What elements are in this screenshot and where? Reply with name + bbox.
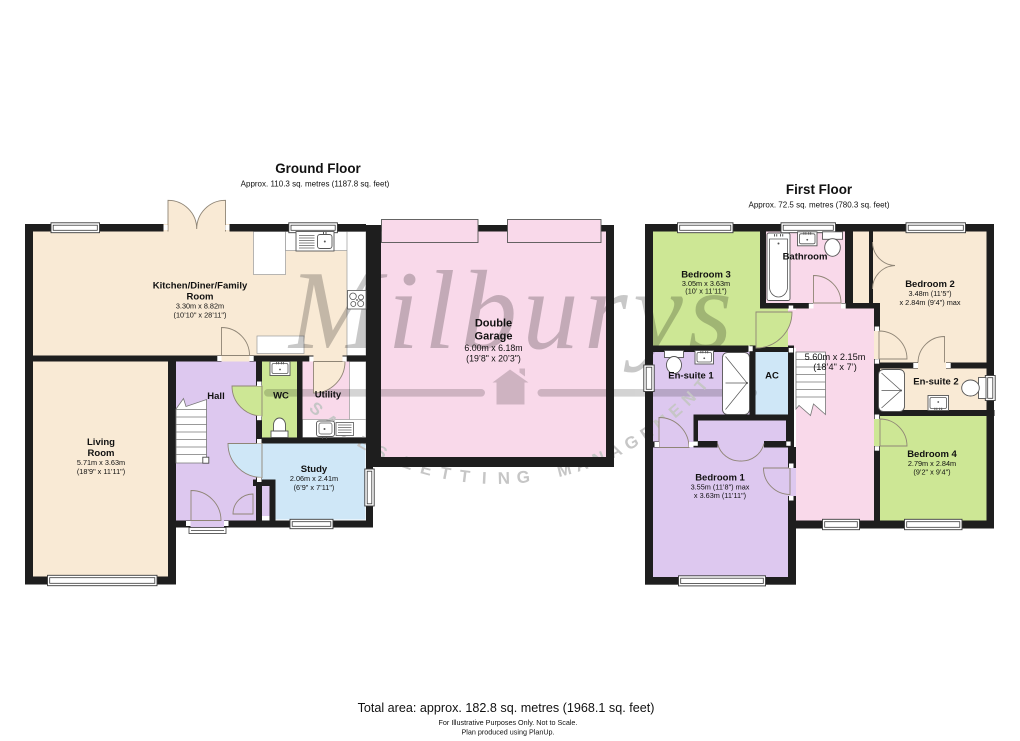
svg-text:x 2.84m (9’4") max: x 2.84m (9’4") max xyxy=(900,298,961,307)
svg-text:(10’ x 11’11"): (10’ x 11’11") xyxy=(685,287,726,296)
svg-text:2.06m x 2.41m: 2.06m x 2.41m xyxy=(290,474,338,483)
svg-text:En-suite 1: En-suite 1 xyxy=(668,371,714,382)
svg-text:(6’9" x 7’11"): (6’9" x 7’11") xyxy=(294,483,335,492)
svg-text:Garage: Garage xyxy=(475,331,513,343)
svg-text:For Illustrative Purposes Only: For Illustrative Purposes Only. Not to S… xyxy=(439,718,578,727)
svg-text:Double: Double xyxy=(475,318,512,330)
svg-text:3.30m x 8.82m: 3.30m x 8.82m xyxy=(176,302,224,311)
svg-text:N: N xyxy=(497,469,510,488)
svg-text:5.71m x 3.63m: 5.71m x 3.63m xyxy=(77,458,125,467)
svg-text:3.48m (11’5"): 3.48m (11’5") xyxy=(908,289,951,298)
svg-text:First Floor: First Floor xyxy=(786,182,853,197)
svg-text:AC: AC xyxy=(765,371,779,382)
svg-text:Approx. 72.5 sq. metres (780.3: Approx. 72.5 sq. metres (780.3 sq. feet) xyxy=(749,201,890,210)
svg-text:(18’4" x 7’): (18’4" x 7’) xyxy=(813,362,857,372)
svg-text:Utility: Utility xyxy=(315,390,342,401)
svg-text:6.00m x 6.18m: 6.00m x 6.18m xyxy=(464,343,522,353)
svg-text:x 3.63m (11’11"): x 3.63m (11’11") xyxy=(694,491,746,500)
svg-text:(9’2" x 9’4"): (9’2" x 9’4") xyxy=(913,468,950,477)
svg-text:(10’10" x 28’11"): (10’10" x 28’11") xyxy=(174,311,227,320)
svg-text:Hall: Hall xyxy=(207,391,224,402)
svg-text:5.60m x 2.15m: 5.60m x 2.15m xyxy=(805,352,866,362)
svg-text:(19’8" x 20’3"): (19’8" x 20’3") xyxy=(466,354,521,364)
svg-text:Bathroom: Bathroom xyxy=(783,252,828,263)
svg-text:Plan produced using PlanUp.: Plan produced using PlanUp. xyxy=(461,728,554,737)
svg-text:I: I xyxy=(481,469,487,488)
svg-text:En-suite 2: En-suite 2 xyxy=(913,377,958,388)
svg-text:Ground Floor: Ground Floor xyxy=(275,161,361,176)
svg-text:G: G xyxy=(516,467,531,487)
svg-text:Living: Living xyxy=(87,437,115,448)
svg-text:Kitchen/Diner/Family: Kitchen/Diner/Family xyxy=(153,281,248,292)
svg-text:Approx. 110.3 sq. metres (1187: Approx. 110.3 sq. metres (1187.8 sq. fee… xyxy=(241,180,390,189)
svg-text:(18’9" x 11’11"): (18’9" x 11’11") xyxy=(77,467,125,476)
svg-text:WC: WC xyxy=(273,391,289,402)
svg-text:Total area: approx. 182.8 sq.: Total area: approx. 182.8 sq. metres (19… xyxy=(358,701,655,715)
